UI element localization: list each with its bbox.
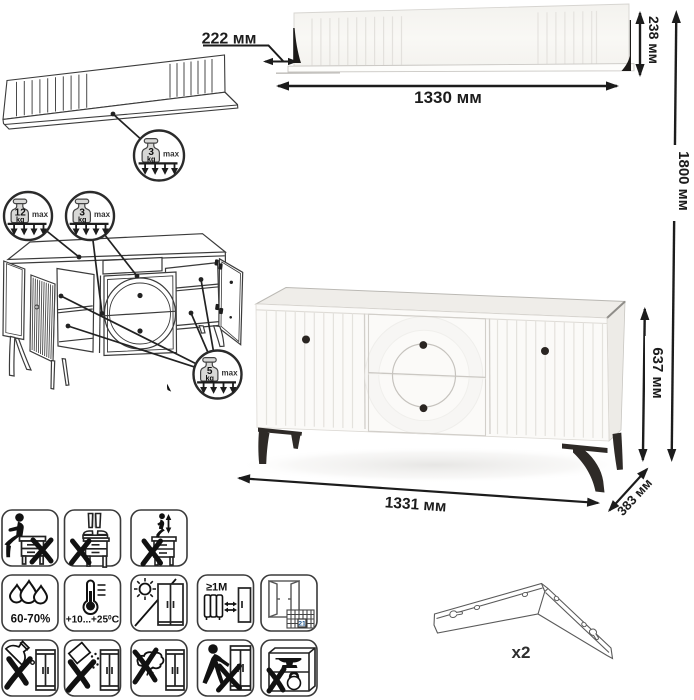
svg-text:60-70%: 60-70%	[11, 614, 51, 626]
svg-text:kg: kg	[205, 374, 214, 383]
svg-text:kg: kg	[147, 155, 156, 164]
svg-text:21: 21	[298, 621, 306, 628]
svg-text:≥1М: ≥1М	[206, 582, 227, 594]
svg-text:1800 мм: 1800 мм	[675, 151, 692, 211]
svg-text:1331 мм: 1331 мм	[384, 494, 447, 515]
svg-text:1330 мм: 1330 мм	[414, 88, 482, 107]
svg-text:238 мм: 238 мм	[646, 16, 662, 64]
svg-text:637 мм: 637 мм	[649, 347, 666, 398]
svg-text:x2: x2	[512, 643, 531, 662]
svg-text:+10...+250С: +10...+250С	[66, 614, 120, 626]
svg-text:kg: kg	[78, 215, 87, 224]
svg-text:kg: kg	[16, 215, 25, 224]
